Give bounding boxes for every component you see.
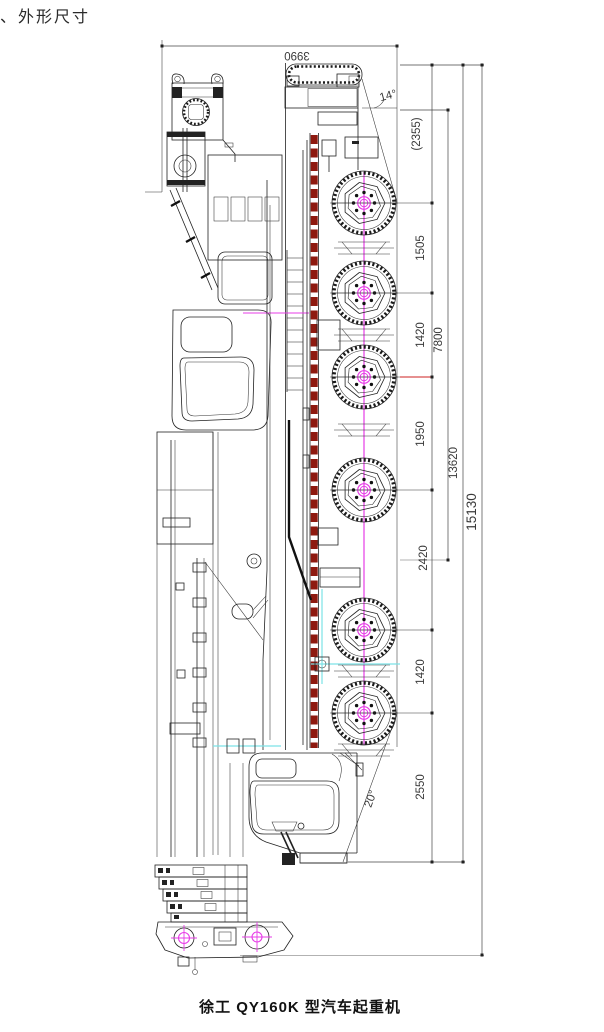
dim-2355-label: (2355) xyxy=(411,117,423,150)
gantry-winch xyxy=(167,74,235,290)
angle-14-label: 14° xyxy=(378,88,398,104)
luffing-cylinder xyxy=(289,420,311,600)
dim-13620-label: 13620 xyxy=(448,447,460,479)
dim-1420a-label: 1420 xyxy=(415,322,427,348)
technical-drawing-qy160k: 3990 (2355) 1505 1420 xyxy=(0,0,604,1032)
dim-2420-label: 2420 xyxy=(418,545,430,571)
boom-head xyxy=(155,865,293,975)
wheels-group xyxy=(330,171,398,756)
figure-caption: 徐工 QY160K 型汽车起重机 xyxy=(120,996,480,1017)
dim-1505-label: 1505 xyxy=(415,235,427,261)
dim-1950-label: 1950 xyxy=(415,421,427,447)
angle-20-label: 20° xyxy=(363,789,380,809)
side-mirror xyxy=(232,604,253,619)
dim-2550-label: 2550 xyxy=(415,774,427,800)
suspension-front xyxy=(334,744,394,756)
dim-3990-label: 3990 xyxy=(284,49,310,61)
dim-7800-label: 7800 xyxy=(433,327,445,353)
dim-15130-label: 15130 xyxy=(464,493,479,531)
boom-assembly xyxy=(157,133,319,857)
driver-cab xyxy=(249,753,363,865)
dim-1420b-label: 1420 xyxy=(415,659,427,685)
